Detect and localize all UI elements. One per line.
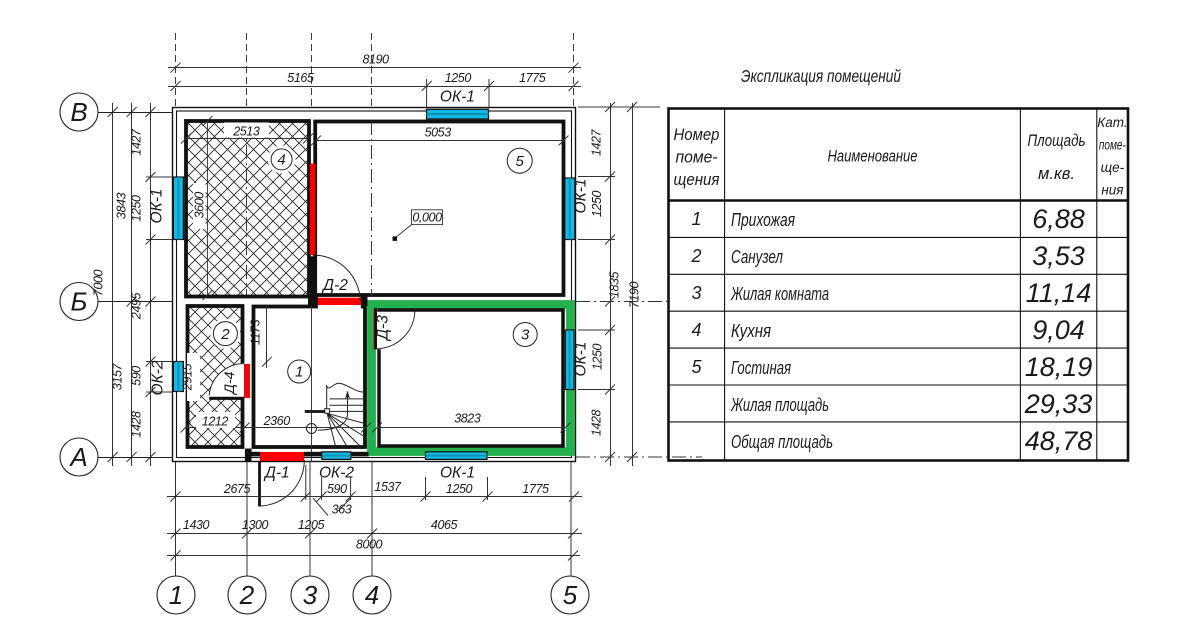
svg-text:Номер: Номер bbox=[674, 126, 720, 144]
svg-text:590: 590 bbox=[130, 366, 144, 386]
svg-text:Жилая площадь: Жилая площадь bbox=[730, 395, 829, 415]
svg-text:2513: 2513 bbox=[232, 124, 260, 138]
svg-text:1: 1 bbox=[295, 364, 303, 381]
svg-text:Кат.: Кат. bbox=[1097, 115, 1127, 130]
svg-text:5: 5 bbox=[691, 357, 702, 377]
svg-text:4: 4 bbox=[277, 152, 285, 169]
svg-text:ще-: ще- bbox=[1101, 160, 1125, 175]
svg-text:48,78: 48,78 bbox=[1025, 426, 1093, 456]
svg-text:Д-1: Д-1 bbox=[263, 465, 290, 482]
svg-text:5165: 5165 bbox=[287, 71, 314, 85]
svg-text:3157: 3157 bbox=[111, 362, 125, 390]
svg-text:9,04: 9,04 bbox=[1032, 315, 1085, 345]
svg-text:3600: 3600 bbox=[193, 192, 207, 219]
svg-text:Санузел: Санузел bbox=[731, 247, 783, 267]
svg-text:1428: 1428 bbox=[590, 409, 604, 436]
svg-text:Д-4: Д-4 bbox=[221, 371, 237, 396]
svg-text:1173: 1173 bbox=[249, 319, 263, 345]
svg-text:3: 3 bbox=[521, 327, 530, 344]
svg-text:ОК-1: ОК-1 bbox=[573, 179, 590, 214]
svg-text:поме-: поме- bbox=[1099, 138, 1126, 153]
svg-text:Жилая комната: Жилая комната bbox=[730, 284, 829, 304]
svg-text:4065: 4065 bbox=[431, 518, 458, 532]
svg-text:Д-3: Д-3 bbox=[375, 315, 392, 342]
svg-text:1: 1 bbox=[169, 580, 183, 610]
svg-text:5: 5 bbox=[563, 580, 578, 610]
svg-text:1250: 1250 bbox=[446, 482, 473, 496]
svg-text:8000: 8000 bbox=[356, 538, 383, 552]
svg-text:3843: 3843 bbox=[115, 192, 129, 219]
svg-text:1427: 1427 bbox=[590, 128, 604, 156]
svg-text:11,14: 11,14 bbox=[1026, 278, 1092, 308]
svg-text:ОК-1: ОК-1 bbox=[573, 342, 590, 377]
svg-text:1427: 1427 bbox=[130, 128, 144, 156]
svg-text:1835: 1835 bbox=[608, 271, 622, 298]
svg-text:В: В bbox=[70, 97, 87, 127]
svg-text:ния: ния bbox=[1101, 183, 1123, 198]
svg-text:Б: Б bbox=[71, 287, 88, 317]
svg-text:29,33: 29,33 bbox=[1024, 389, 1093, 419]
svg-text:6,88: 6,88 bbox=[1032, 204, 1085, 234]
svg-text:1250: 1250 bbox=[591, 343, 605, 370]
svg-text:18,19: 18,19 bbox=[1025, 352, 1093, 382]
svg-text:590: 590 bbox=[327, 482, 347, 496]
svg-text:1775: 1775 bbox=[522, 482, 549, 496]
svg-text:1205: 1205 bbox=[298, 518, 325, 532]
svg-text:1212: 1212 bbox=[202, 415, 229, 429]
svg-text:7190: 7190 bbox=[628, 281, 642, 308]
svg-text:3: 3 bbox=[303, 580, 318, 610]
svg-text:363: 363 bbox=[332, 503, 352, 517]
svg-text:Кухня: Кухня bbox=[731, 321, 771, 341]
svg-text:1537: 1537 bbox=[374, 480, 402, 494]
svg-text:3,53: 3,53 bbox=[1032, 241, 1085, 271]
svg-text:2360: 2360 bbox=[263, 414, 291, 428]
svg-text:ОК-1: ОК-1 bbox=[440, 88, 475, 105]
svg-text:Площадь: Площадь bbox=[1028, 132, 1086, 150]
svg-text:2915: 2915 bbox=[181, 364, 195, 392]
svg-text:2: 2 bbox=[220, 326, 230, 343]
svg-text:5: 5 bbox=[516, 153, 525, 170]
svg-text:0,000: 0,000 bbox=[412, 210, 442, 224]
svg-text:1250: 1250 bbox=[445, 71, 472, 85]
svg-text:3: 3 bbox=[691, 283, 701, 303]
svg-text:Общая площадь: Общая площадь bbox=[731, 432, 833, 452]
svg-text:щения: щения bbox=[674, 171, 720, 189]
svg-text:5053: 5053 bbox=[425, 125, 452, 139]
svg-text:м.кв.: м.кв. bbox=[1038, 165, 1075, 183]
svg-text:поме-: поме- bbox=[676, 149, 718, 167]
svg-text:1300: 1300 bbox=[242, 518, 269, 532]
svg-text:Экспликация помещений: Экспликация помещений bbox=[741, 66, 901, 86]
svg-text:Наименование: Наименование bbox=[828, 148, 918, 166]
svg-text:А: А bbox=[68, 442, 87, 472]
svg-text:2495: 2495 bbox=[130, 292, 144, 320]
svg-text:ОК-2: ОК-2 bbox=[150, 360, 167, 395]
svg-text:1430: 1430 bbox=[183, 518, 210, 532]
svg-text:2675: 2675 bbox=[223, 482, 251, 496]
svg-text:1250: 1250 bbox=[130, 195, 144, 222]
svg-text:4: 4 bbox=[691, 320, 701, 340]
svg-text:ОК-1: ОК-1 bbox=[440, 465, 475, 482]
svg-text:8190: 8190 bbox=[362, 53, 389, 67]
svg-text:2: 2 bbox=[690, 246, 701, 266]
svg-text:ОК-1: ОК-1 bbox=[149, 189, 166, 224]
svg-text:1428: 1428 bbox=[130, 411, 144, 438]
svg-text:1: 1 bbox=[691, 209, 701, 229]
svg-text:ОК-2: ОК-2 bbox=[319, 465, 354, 482]
svg-text:Д-2: Д-2 bbox=[321, 277, 348, 294]
svg-text:Прихожая: Прихожая bbox=[731, 210, 795, 230]
svg-text:1775: 1775 bbox=[519, 71, 546, 85]
svg-text:2: 2 bbox=[239, 580, 255, 610]
svg-text:Гостиная: Гостиная bbox=[731, 358, 791, 378]
svg-text:3823: 3823 bbox=[454, 412, 481, 426]
svg-text:4: 4 bbox=[365, 580, 379, 610]
svg-text:7000: 7000 bbox=[92, 269, 106, 296]
svg-text:1250: 1250 bbox=[590, 190, 604, 217]
